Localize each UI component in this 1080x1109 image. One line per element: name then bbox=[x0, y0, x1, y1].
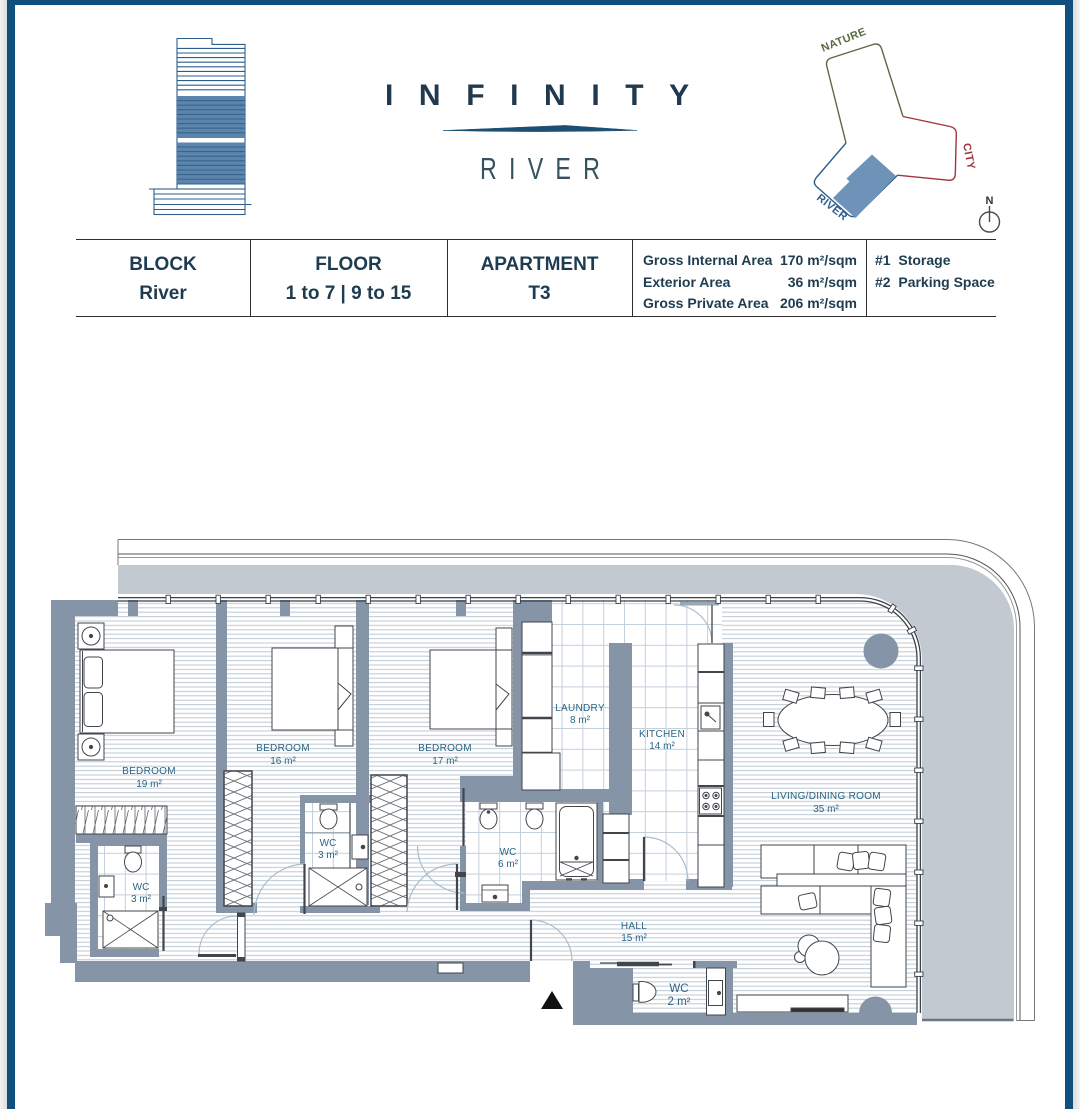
svg-text:19 m²: 19 m² bbox=[136, 779, 162, 790]
svg-text:BEDROOM: BEDROOM bbox=[418, 743, 472, 754]
svg-text:2 m²: 2 m² bbox=[668, 996, 691, 1008]
svg-text:8 m²: 8 m² bbox=[570, 715, 591, 726]
svg-text:17 m²: 17 m² bbox=[432, 756, 458, 767]
svg-text:14 m²: 14 m² bbox=[649, 741, 675, 752]
svg-text:CITY: CITY bbox=[960, 142, 977, 171]
svg-text:KITCHEN: KITCHEN bbox=[639, 729, 685, 740]
svg-text:3 m²: 3 m² bbox=[131, 894, 152, 905]
svg-text:3 m²: 3 m² bbox=[318, 850, 339, 861]
svg-text:NATURE: NATURE bbox=[820, 26, 868, 55]
svg-text:16 m²: 16 m² bbox=[270, 756, 296, 767]
svg-text:35 m²: 35 m² bbox=[813, 804, 839, 815]
svg-text:BEDROOM: BEDROOM bbox=[122, 766, 176, 777]
svg-text:15 m²: 15 m² bbox=[621, 933, 647, 944]
svg-text:6 m²: 6 m² bbox=[498, 859, 519, 870]
svg-text:WC: WC bbox=[669, 983, 688, 995]
svg-text:N: N bbox=[986, 195, 994, 207]
svg-text:WC: WC bbox=[500, 847, 517, 858]
svg-text:BEDROOM: BEDROOM bbox=[256, 743, 310, 754]
svg-text:LAUNDRY: LAUNDRY bbox=[555, 703, 605, 714]
svg-text:LIVING/DINING ROOM: LIVING/DINING ROOM bbox=[771, 791, 881, 802]
svg-text:WC: WC bbox=[133, 882, 150, 893]
svg-text:WC: WC bbox=[320, 838, 337, 849]
svg-text:HALL: HALL bbox=[621, 921, 647, 932]
